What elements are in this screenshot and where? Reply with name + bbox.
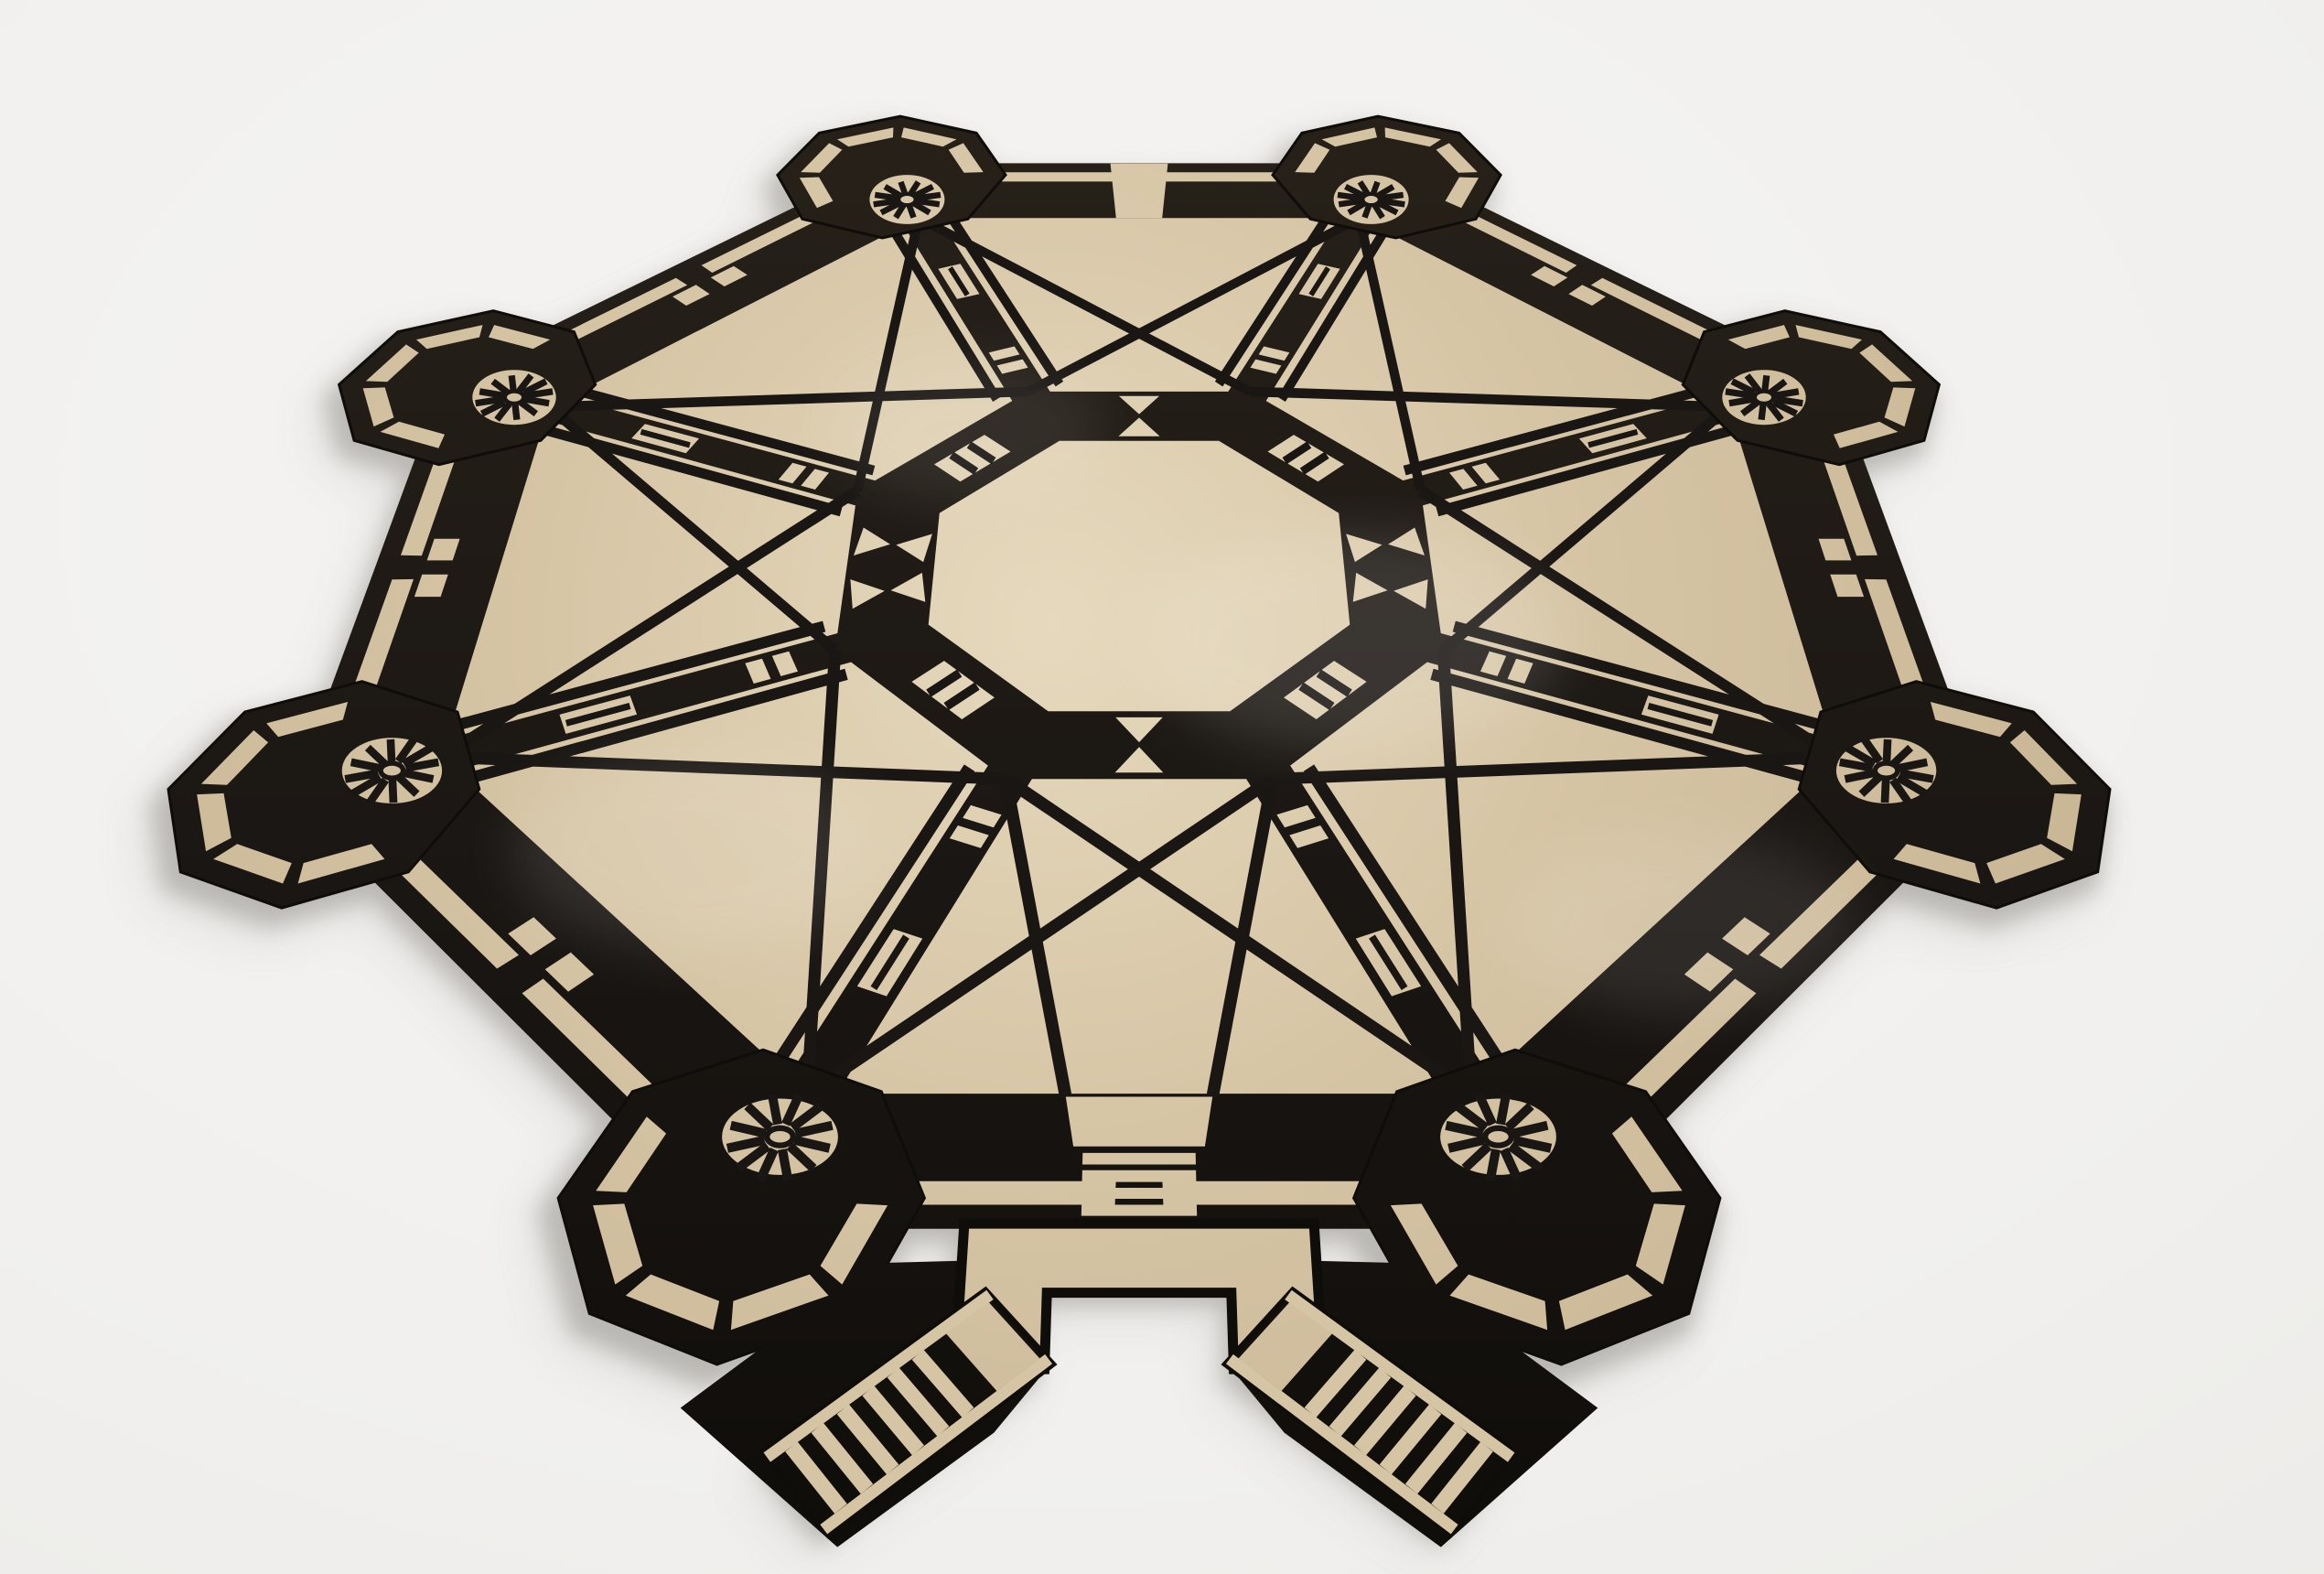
rosette-motif bbox=[1836, 738, 1936, 803]
castle-plan-rug bbox=[168, 116, 2110, 1547]
rosette-motif bbox=[1722, 370, 1805, 425]
entrance-portal bbox=[1066, 1097, 1212, 1216]
rosette-motif bbox=[869, 175, 944, 224]
rosette-motif bbox=[1334, 175, 1409, 224]
castle-rug-photo bbox=[0, 0, 2324, 1574]
rosette-motif bbox=[342, 738, 442, 803]
photo-stage bbox=[0, 0, 2324, 1574]
rosette-motif bbox=[472, 370, 555, 425]
back-portal bbox=[1111, 164, 1168, 219]
